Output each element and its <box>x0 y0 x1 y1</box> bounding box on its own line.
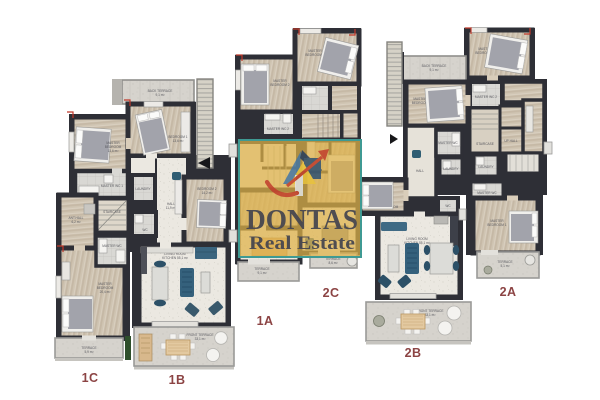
svg-text:9,1 m²: 9,1 m² <box>155 93 164 97</box>
svg-text:33,1 m²: 33,1 m² <box>195 337 206 341</box>
svg-text:13,6 m²: 13,6 m² <box>108 149 119 153</box>
svg-text:1A: 1A <box>257 314 274 328</box>
svg-text:5,9 m²: 5,9 m² <box>84 350 93 354</box>
svg-text:MASTER WC 2: MASTER WC 2 <box>267 127 289 131</box>
svg-text:8,6 m²: 8,6 m² <box>328 261 337 265</box>
svg-text:9,1 m²: 9,1 m² <box>257 271 266 275</box>
svg-text:MASTER WC 1: MASTER WC 1 <box>101 184 123 188</box>
svg-text:LAUNDRY: LAUNDRY <box>478 165 494 169</box>
svg-text:STAIRCASE: STAIRCASE <box>103 210 121 214</box>
svg-text:KITCHEN 55,1 m²: KITCHEN 55,1 m² <box>162 256 188 260</box>
svg-text:5,1 m²: 5,1 m² <box>500 264 509 268</box>
svg-text:STAIRCASE: STAIRCASE <box>476 142 494 146</box>
svg-text:WC: WC <box>445 204 451 208</box>
svg-text:14,2 m²: 14,2 m² <box>202 191 213 195</box>
svg-text:2B: 2B <box>405 346 422 360</box>
svg-text:33,1 m²: 33,1 m² <box>425 313 436 317</box>
svg-text:DONTAS: DONTAS <box>246 205 358 236</box>
svg-text:1C: 1C <box>82 371 99 385</box>
svg-text:BEDROOM 2: BEDROOM 2 <box>270 83 289 87</box>
svg-text:2A: 2A <box>500 285 517 299</box>
svg-text:WC: WC <box>142 228 148 232</box>
svg-text:13,6 m²: 13,6 m² <box>173 139 184 143</box>
svg-text:2C: 2C <box>323 286 340 300</box>
svg-text:MASTER WC: MASTER WC <box>477 191 497 195</box>
svg-text:MASTER WC: MASTER WC <box>438 141 458 145</box>
svg-text:1B: 1B <box>169 373 186 387</box>
svg-text:BEDROOM 1: BEDROOM 1 <box>487 223 506 227</box>
svg-text:MASTER WC: MASTER WC <box>102 244 122 248</box>
svg-text:MASTER WC 2: MASTER WC 2 <box>475 95 497 99</box>
svg-text:UP HALL: UP HALL <box>504 139 517 143</box>
svg-text:Real Estate: Real Estate <box>249 233 355 254</box>
svg-text:HALL: HALL <box>416 169 424 173</box>
svg-text:6,2 m²: 6,2 m² <box>71 220 80 224</box>
svg-text:20,4 m²: 20,4 m² <box>100 290 111 294</box>
svg-text:LAUNDRY: LAUNDRY <box>443 167 459 171</box>
svg-text:LAUNDRY: LAUNDRY <box>135 187 151 191</box>
svg-text:9,1 m²: 9,1 m² <box>429 68 438 72</box>
